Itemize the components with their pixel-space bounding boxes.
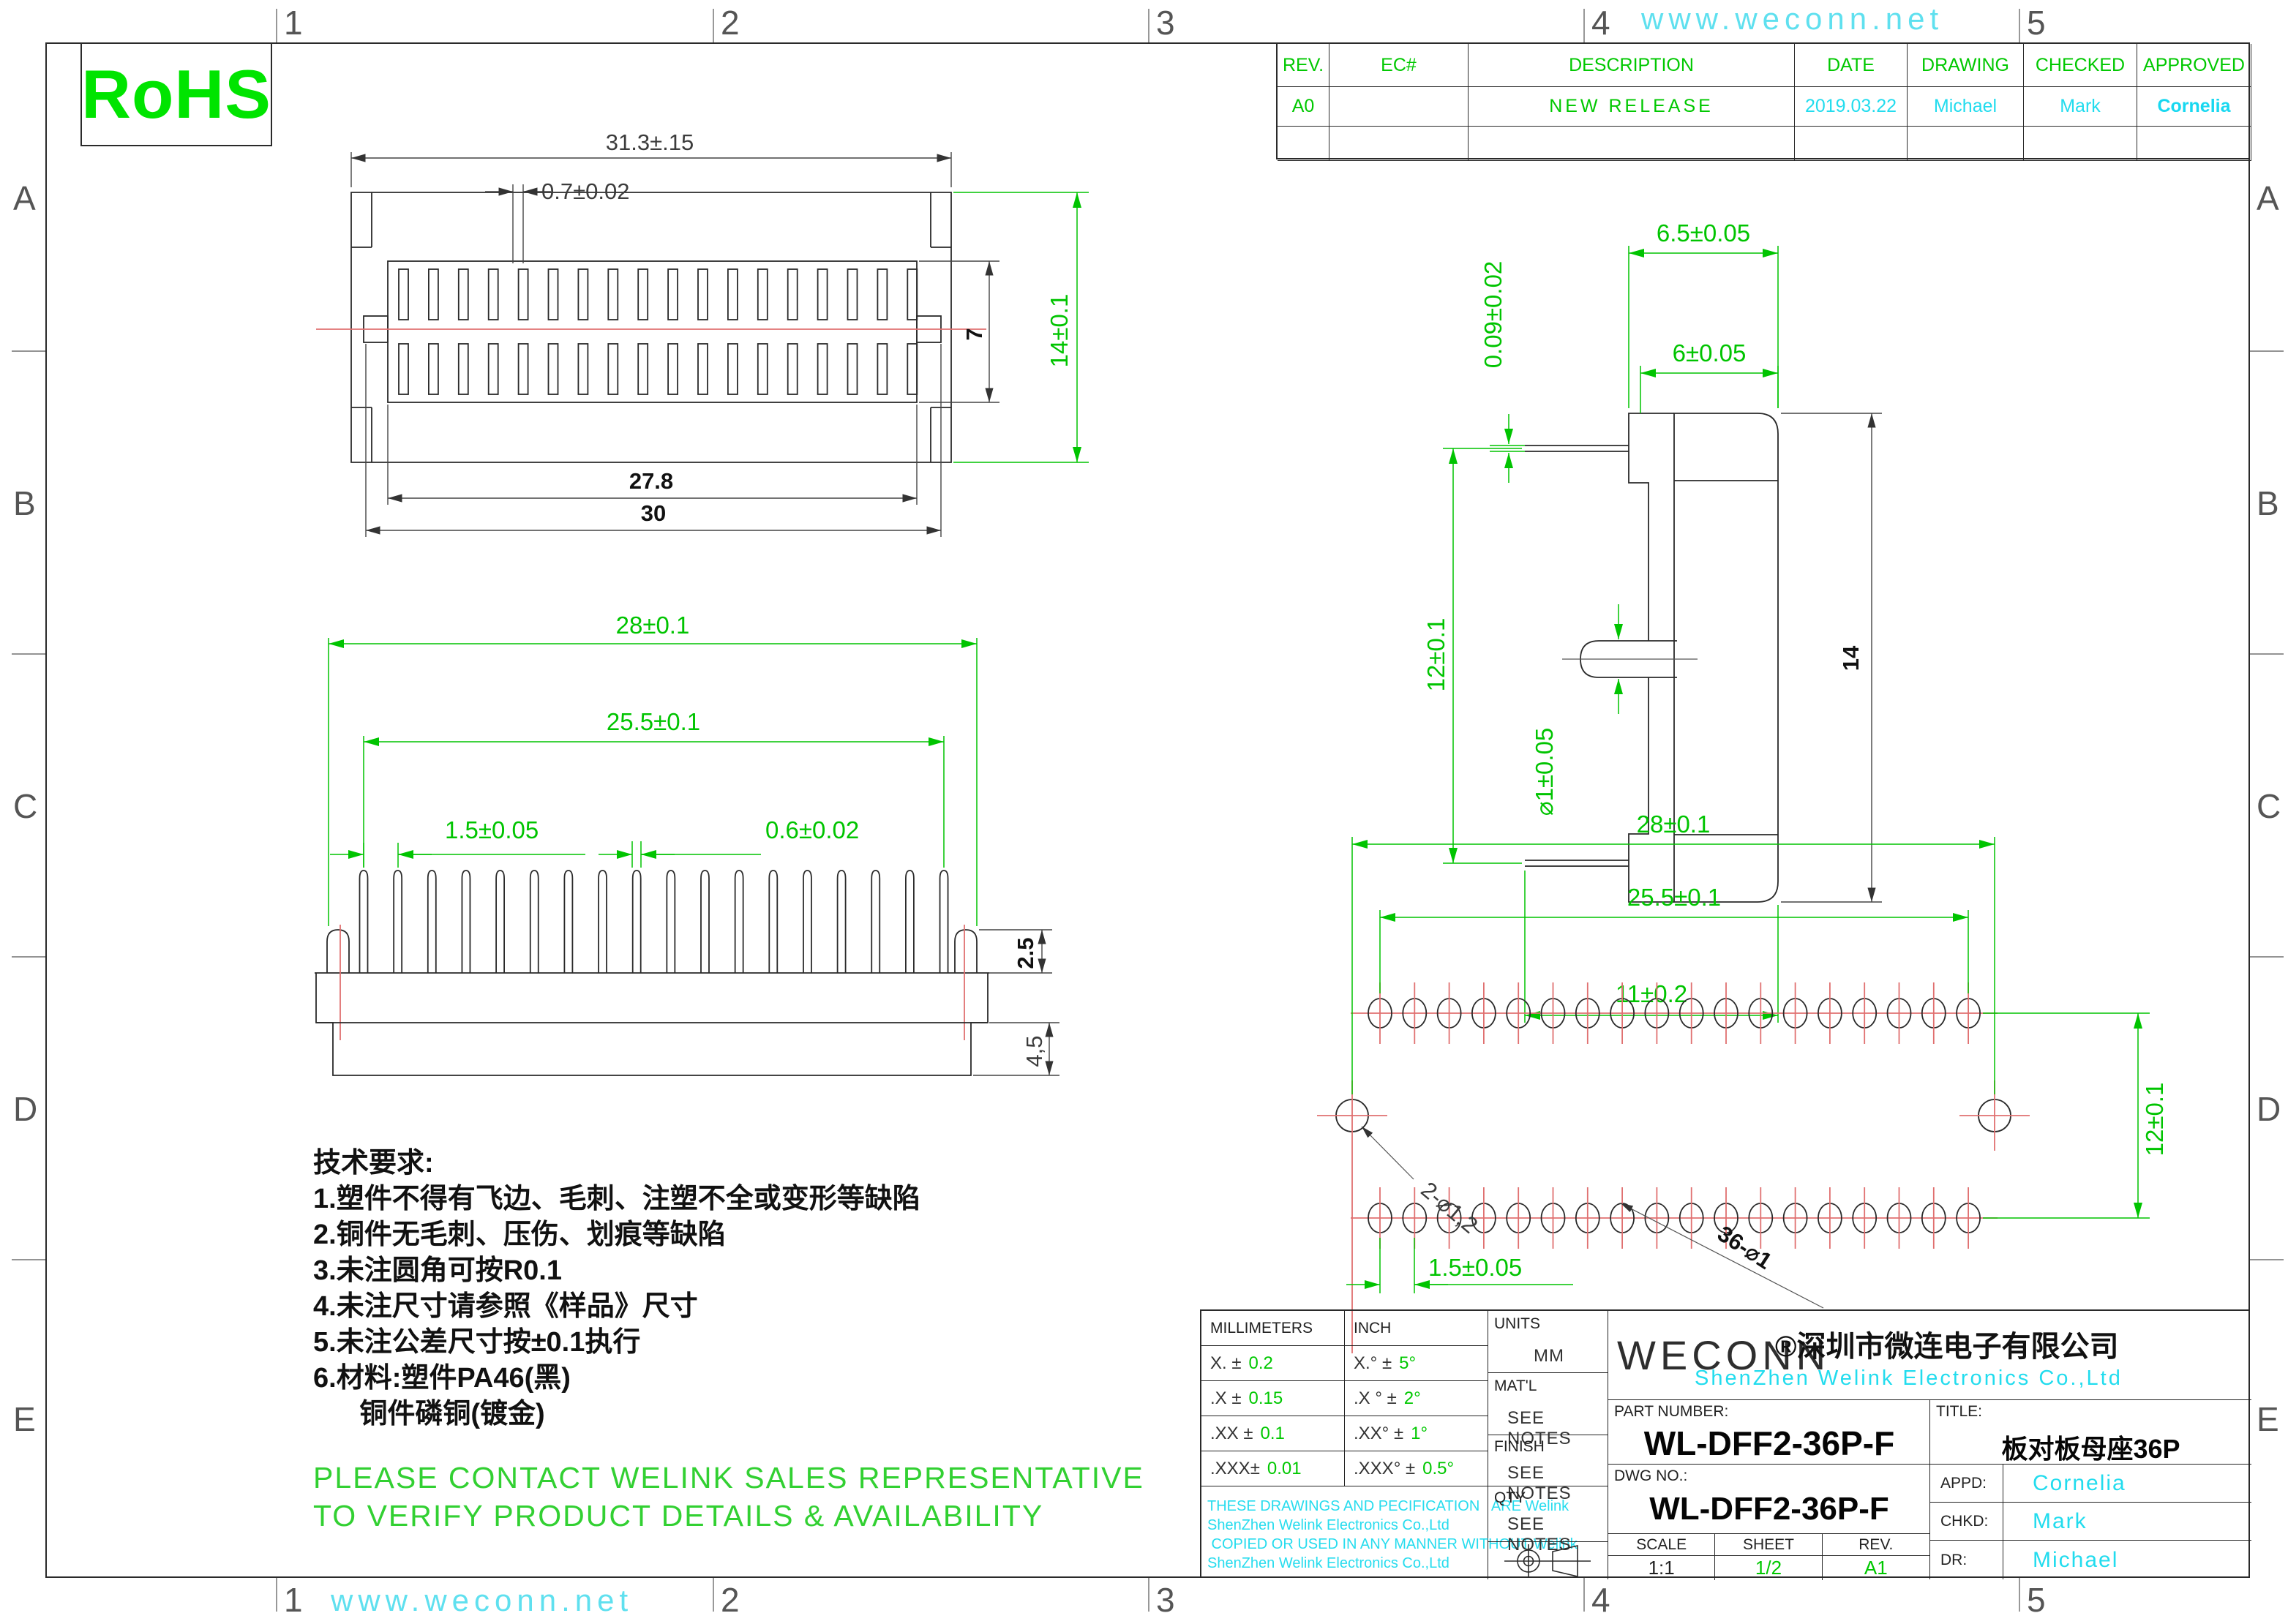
tol-row: X.° ± 5° xyxy=(1345,1346,1488,1381)
rohs-label: RoHS xyxy=(81,55,271,134)
projection-symbol-cell xyxy=(1488,1542,1608,1579)
tech-item-6: 6.材料:塑件PA46(黑) xyxy=(313,1361,920,1396)
zone-bot-5: 5 xyxy=(2027,1580,2046,1620)
chkd-value: Mark xyxy=(2003,1509,2088,1534)
rev-header: DRAWING xyxy=(1908,44,2024,87)
rev-cell-checked: Mark xyxy=(2024,87,2137,127)
tol-header-inch: INCH xyxy=(1345,1311,1488,1346)
rev-cell-approved: Cornelia xyxy=(2137,87,2251,127)
tol-row: .X ° ± 2° xyxy=(1345,1381,1488,1416)
tol-row: .X ± 0.15 xyxy=(1201,1381,1345,1416)
scale-value: 1:1 xyxy=(1608,1556,1715,1580)
tol-row: .XX° ± 1° xyxy=(1345,1416,1488,1451)
qty-cell: QTY SEE NOTES xyxy=(1488,1486,1608,1542)
matl-cell: MAT'L SEE NOTES xyxy=(1488,1373,1608,1435)
dwg-no-cell: DWG NO.: WL-DFF2-36P-F xyxy=(1608,1465,1930,1533)
dwg-no-value: WL-DFF2-36P-F xyxy=(1608,1491,1930,1527)
zone-top-1: 1 xyxy=(284,3,303,42)
zone-top-3: 3 xyxy=(1156,3,1175,42)
brand-row: WECONN ®深圳市微连电子有限公司 ShenZhen Welink Elec… xyxy=(1608,1311,2251,1400)
zone-right-b: B xyxy=(2257,484,2279,523)
dr-value: Michael xyxy=(2003,1548,2118,1573)
rev-value: A1 xyxy=(1823,1556,1929,1580)
tech-item-1: 1.塑件不得有飞边、毛刺、注塑不全或变形等缺陷 xyxy=(313,1181,920,1217)
rev-header: REV. xyxy=(1278,44,1329,87)
company-name-cn: ®深圳市微连电子有限公司 xyxy=(1775,1323,2118,1365)
rev-cell-date: 2019.03.22 xyxy=(1795,87,1908,127)
zone-left-a: A xyxy=(13,178,36,218)
tech-requirements: 技术要求: 1.塑件不得有飞边、毛刺、注塑不全或变形等缺陷 2.铜件无毛刺、压伤… xyxy=(313,1146,920,1432)
title-block: MILLIMETERS INCH X. ± 0.2 X.° ± 5° .X ± … xyxy=(1200,1309,2250,1578)
drawing-sheet: 31.3±.15 0.7±0.02 7 14±0.1 27.8 30 xyxy=(0,0,2288,1624)
rev-header: APPROVED xyxy=(2137,44,2251,87)
tech-item-6b: 铜件磷铜(镀金) xyxy=(313,1396,920,1432)
rev-cell-rev: A0 xyxy=(1278,87,1329,127)
tech-item-5: 5.未注公差尺寸按±0.1执行 xyxy=(313,1325,920,1361)
rev-header: CHECKED xyxy=(2024,44,2137,87)
sheet-value: 1/2 xyxy=(1715,1556,1822,1580)
zone-left-d: D xyxy=(13,1089,37,1129)
part-number-cell: PART NUMBER: WL-DFF2-36P-F xyxy=(1608,1400,1930,1465)
zone-left-b: B xyxy=(13,484,36,523)
zone-right-e: E xyxy=(2257,1399,2279,1439)
rev-cell-desc: NEW RELEASE xyxy=(1469,87,1795,127)
zone-bot-2: 2 xyxy=(721,1580,740,1620)
rev-header: DATE xyxy=(1795,44,1908,87)
appd-value: Cornelia xyxy=(2003,1471,2126,1496)
dr-row: DR: Michael xyxy=(1930,1541,2251,1579)
zone-right-d: D xyxy=(2257,1089,2281,1129)
zone-right-c: C xyxy=(2257,786,2281,826)
rev-cell-ec xyxy=(1329,87,1469,127)
sheet-label: SHEET xyxy=(1715,1534,1822,1556)
watermark-bottom: www.weconn.net xyxy=(331,1583,633,1618)
notice-line-2: TO VERIFY PRODUCT DETAILS & AVAILABILITY xyxy=(313,1497,1144,1535)
zone-bot-4: 4 xyxy=(1591,1580,1610,1620)
rev-label: REV. xyxy=(1823,1534,1929,1556)
finish-cell: FINISH SEE NOTES xyxy=(1488,1435,1608,1486)
tech-title: 技术要求: xyxy=(313,1146,920,1181)
tol-row: X. ± 0.2 xyxy=(1201,1346,1345,1381)
zone-top-2: 2 xyxy=(721,3,740,42)
zone-top-4: 4 xyxy=(1591,3,1610,42)
scale-sheet-rev: SCALE SHEET REV. 1:1 1/2 A1 xyxy=(1608,1533,1930,1579)
drawing-title-value: 板对板母座36P xyxy=(1930,1428,2251,1466)
rohs-badge: RoHS xyxy=(80,42,272,146)
watermark-top: www.weconn.net xyxy=(1641,1,1943,37)
tol-row: .XXX° ± 0.5° xyxy=(1345,1451,1488,1486)
tech-item-4: 4.未注尺寸请参照《样品》尺寸 xyxy=(313,1289,920,1325)
disclaimer: THESE DRAWINGS AND PECIFICATION ARE Weli… xyxy=(1201,1486,1488,1579)
company-name-en: ShenZhen Welink Electronics Co.,Ltd xyxy=(1695,1367,2123,1391)
notice-line-1: PLEASE CONTACT WELINK SALES REPRESENTATI… xyxy=(313,1459,1144,1497)
rev-header: DESCRIPTION xyxy=(1469,44,1795,87)
tech-item-3: 3.未注圆角可按R0.1 xyxy=(313,1253,920,1289)
rev-cell-empty xyxy=(1278,127,1329,161)
tol-row: .XXX± 0.01 xyxy=(1201,1451,1345,1486)
zone-left-e: E xyxy=(13,1399,36,1439)
rev-cell-drawing: Michael xyxy=(1908,87,2024,127)
third-angle-projection-icon xyxy=(1488,1542,1608,1579)
zone-bot-3: 3 xyxy=(1156,1580,1175,1620)
units-cell: UNITS MM xyxy=(1488,1311,1608,1373)
title-cell: TITLE: 板对板母座36P xyxy=(1930,1400,2251,1465)
part-number-value: WL-DFF2-36P-F xyxy=(1608,1424,1930,1463)
scale-label: SCALE xyxy=(1608,1534,1715,1556)
chkd-row: CHKD: Mark xyxy=(1930,1503,2251,1541)
tol-row: .XX ± 0.1 xyxy=(1201,1416,1345,1451)
zone-right-a: A xyxy=(2257,178,2279,218)
zone-bot-1: 1 xyxy=(284,1580,303,1620)
zone-top-5: 5 xyxy=(2027,3,2046,42)
revision-table: REV. EC# DESCRIPTION DATE DRAWING CHECKE… xyxy=(1276,42,2250,159)
zone-left-c: C xyxy=(13,786,37,826)
tech-item-2: 2.铜件无毛刺、压伤、划痕等缺陷 xyxy=(313,1217,920,1253)
sales-notice: PLEASE CONTACT WELINK SALES REPRESENTATI… xyxy=(313,1459,1144,1535)
tol-header-mm: MILLIMETERS xyxy=(1201,1311,1345,1346)
appd-row: APPD: Cornelia xyxy=(1930,1465,2251,1503)
rev-header: EC# xyxy=(1329,44,1469,87)
